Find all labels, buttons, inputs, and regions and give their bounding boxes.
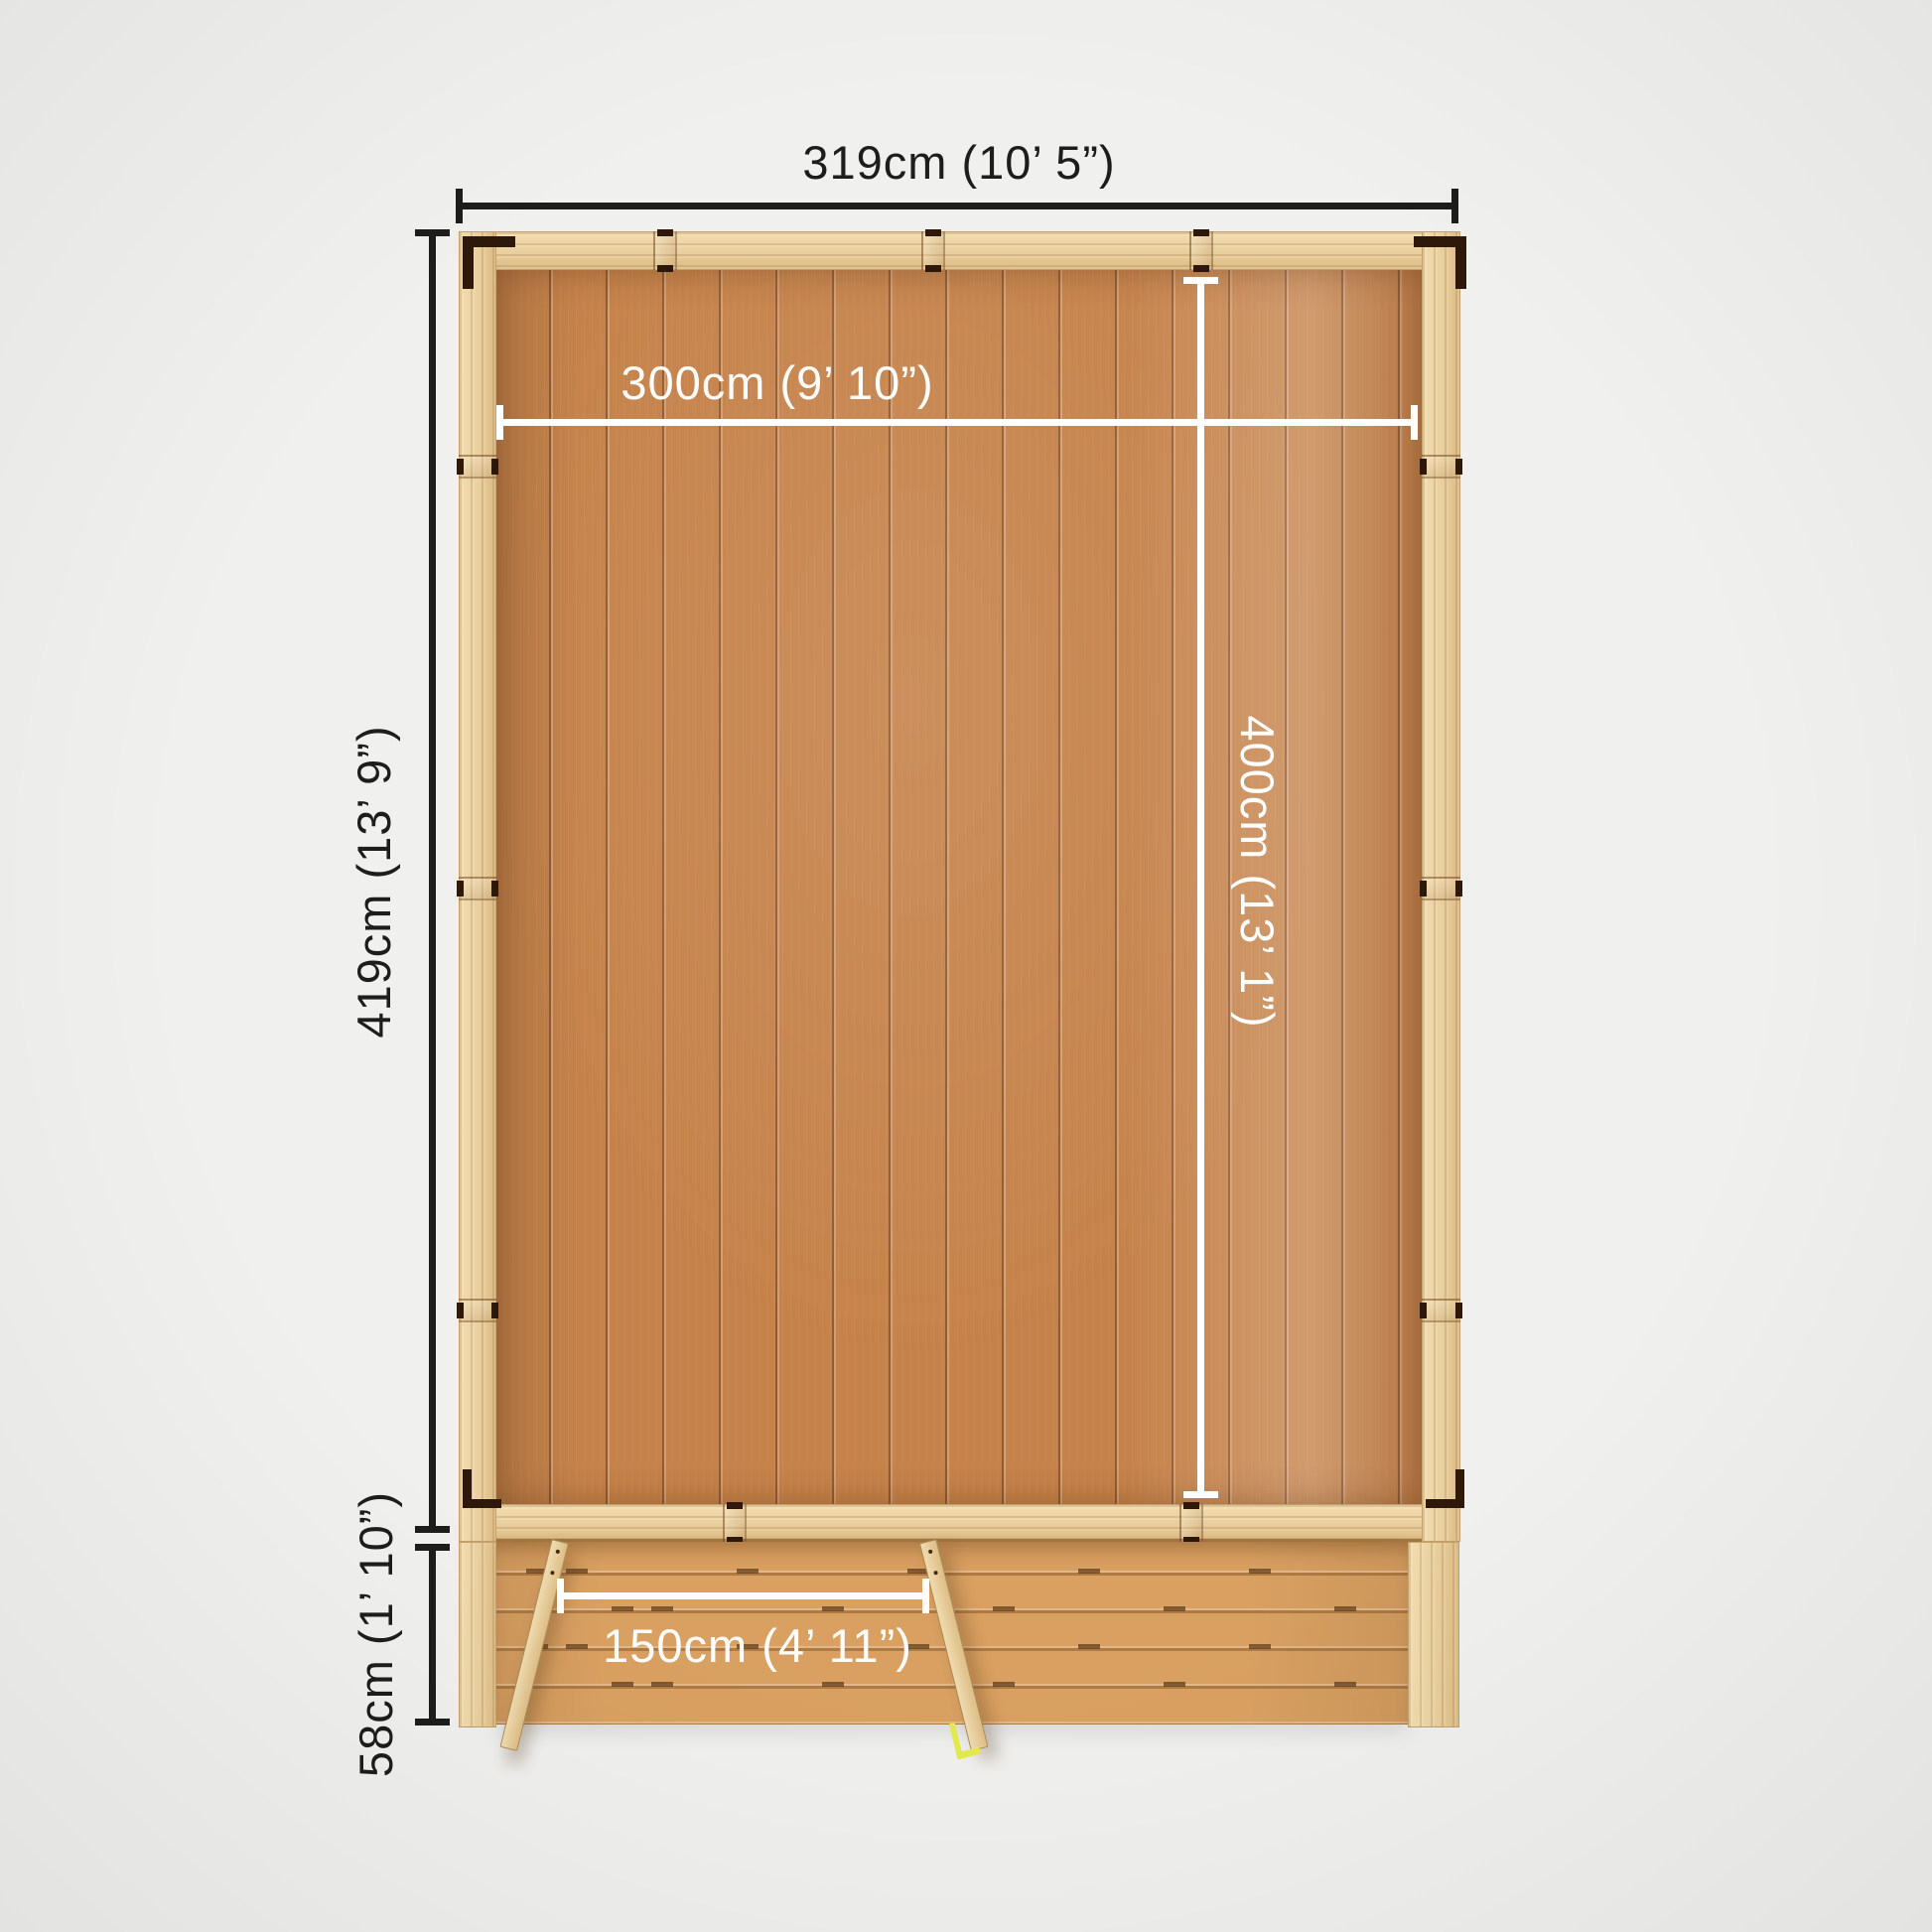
dimension-line-internal-depth: [1197, 280, 1204, 1497]
dimension-tick: [415, 229, 450, 236]
dimension-tick: [415, 1544, 450, 1551]
veranda-post-left: [459, 1542, 496, 1727]
dimension-label-internal-depth: 400cm (13’ 1”): [1231, 715, 1283, 1028]
dimension-tick: [1183, 277, 1218, 284]
wall-bottom: [459, 1504, 1460, 1542]
dimension-label-overall-width: 319cm (10’ 5”): [802, 137, 1115, 189]
dimension-line-overall-width: [459, 203, 1457, 209]
hinge-dot-icon: [550, 1571, 555, 1576]
wall-joint: [1189, 231, 1213, 270]
hinge-dot-icon: [555, 1549, 560, 1554]
dimension-tick: [1183, 1491, 1218, 1498]
wall-joint: [653, 231, 677, 270]
wall-joint: [1179, 1504, 1203, 1542]
dimension-tick: [557, 1579, 564, 1613]
wall-joint: [723, 1504, 747, 1542]
hinge-dot-icon: [928, 1549, 933, 1554]
corner-bracket: [1414, 236, 1466, 289]
corner-bracket: [463, 1469, 501, 1508]
veranda-post-right: [1408, 1542, 1459, 1727]
dimension-tick: [1411, 405, 1418, 440]
wall-joint: [921, 231, 945, 270]
dimension-label-internal-width: 300cm (9’ 10”): [621, 357, 933, 409]
wall-joint: [459, 455, 496, 479]
dimension-label-overall-depth: 419cm (13’ 9”): [348, 725, 400, 1037]
dimension-line-door-opening: [560, 1592, 929, 1599]
dimension-line-overall-depth: [429, 232, 436, 1531]
dimension-line-veranda-depth: [429, 1547, 436, 1725]
dimension-tick: [1451, 189, 1458, 223]
plank-joints-row: [506, 1569, 1400, 1574]
dimension-line-internal-width: [499, 419, 1418, 426]
dimension-tick: [415, 1526, 450, 1533]
wall-joint: [1422, 1299, 1460, 1322]
dimension-tick: [922, 1579, 929, 1613]
wall-joint: [459, 1299, 496, 1322]
wall-joint: [1422, 877, 1460, 900]
dimension-tick: [415, 1719, 450, 1725]
wall-top: [459, 231, 1460, 270]
plan-diagram: 319cm (10’ 5”) 419cm (13’ 9”) 58cm (1’ 1…: [0, 0, 1932, 1932]
corner-bracket: [463, 236, 515, 289]
dimension-label-veranda-depth: 58cm (1’ 10”): [350, 1491, 402, 1777]
hinge-dot-icon: [933, 1571, 938, 1576]
wall-joint: [459, 877, 496, 900]
corner-bracket: [1426, 1469, 1464, 1508]
wall-joint: [1422, 455, 1460, 479]
dimension-tick: [496, 405, 503, 440]
dimension-tick: [456, 189, 463, 223]
door-handle-icon: [949, 1719, 981, 1760]
dimension-label-door-opening: 150cm (4’ 11”): [603, 1620, 912, 1672]
